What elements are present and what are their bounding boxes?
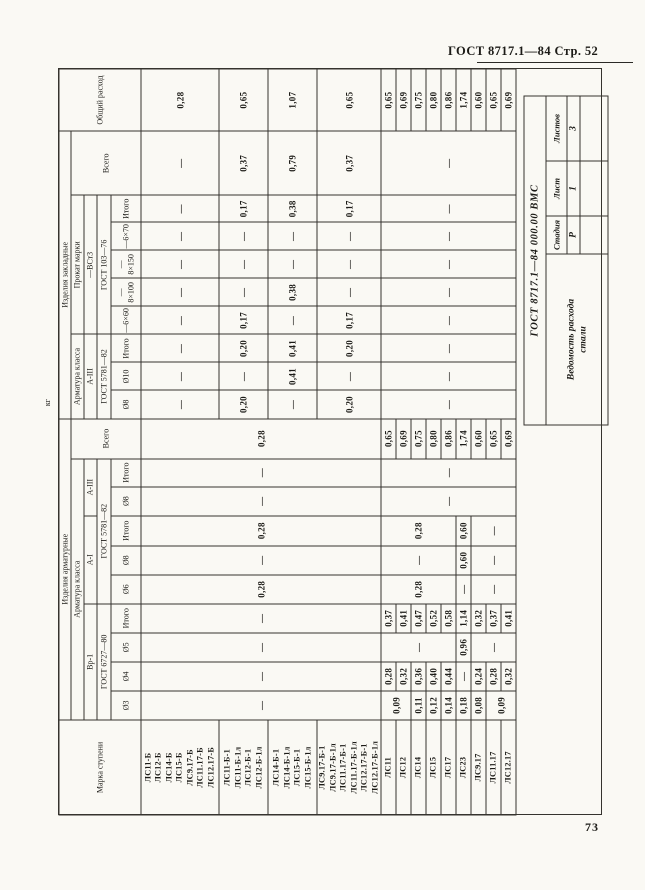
stamp-col-sheet: Лист 1	[546, 160, 607, 215]
header-cell: ГОСТ 5781—82	[97, 334, 111, 418]
data-cell: 0,60	[456, 515, 471, 545]
title-stamp: ГОСТ 8717.1—84 000.00 ВМС Ведомость расх…	[523, 95, 608, 425]
data-cell: 0,65	[486, 418, 501, 458]
data-cell: —	[141, 603, 381, 632]
header-cell: Ø10	[111, 362, 141, 390]
data-cell: 0,37	[381, 603, 396, 632]
data-cell: 0,28	[381, 515, 456, 545]
data-cell: —	[141, 545, 381, 574]
data-cell: 0,69	[396, 69, 411, 131]
main-table: Марка ступениИзделия арматурныеИзделия з…	[58, 68, 516, 815]
header-cell: Арматура класса	[71, 458, 84, 719]
data-cell: 0,17	[317, 306, 381, 334]
data-cell: 0,38	[268, 195, 317, 222]
stamp-document-title: Ведомость расхода стали	[546, 253, 607, 424]
mark-cell: ЛС9.17-Б-1 ЛС9.17-Б-1л ЛС11.17-Б-1 ЛС11.…	[317, 719, 381, 814]
data-cell: —	[141, 661, 381, 690]
data-cell: 0,38	[268, 278, 317, 306]
data-cell: 0,37	[219, 131, 268, 195]
data-cell: 0,69	[501, 69, 516, 131]
mark-cell: ЛС11-Б ЛС12-Б ЛС14-Б ЛС15-Б ЛС9.17-Б ЛС1…	[141, 719, 219, 814]
header-cell: ГОСТ 103—76	[97, 195, 111, 334]
data-cell: —	[141, 250, 219, 278]
data-cell: 0,09	[486, 690, 516, 719]
data-cell: —	[381, 195, 516, 222]
page-header: ГОСТ 8717.1—84 Стр. 52	[448, 44, 638, 59]
data-cell: —	[381, 486, 516, 515]
data-cell: —	[219, 362, 268, 390]
data-cell: —	[141, 334, 219, 362]
data-cell: 0,17	[219, 195, 268, 222]
data-cell: 0,32	[396, 661, 411, 690]
data-cell: 0,75	[411, 418, 426, 458]
stage-value: Р	[567, 216, 580, 253]
header-cell: Ø5	[111, 632, 141, 661]
data-cell: —	[141, 306, 219, 334]
stamp-col-sheets-total: Листов 3	[546, 96, 607, 160]
data-cell: —	[317, 250, 381, 278]
data-cell: —	[381, 334, 516, 362]
data-cell: 0,52	[426, 603, 441, 632]
data-cell: 0,58	[441, 603, 456, 632]
data-cell: —	[317, 278, 381, 306]
data-cell: 0,28	[381, 661, 396, 690]
data-cell: —	[317, 222, 381, 250]
data-cell: 0,28	[141, 418, 381, 458]
header-cell: Изделия арматурные	[59, 418, 71, 719]
data-cell: 0,65	[317, 69, 381, 131]
mark-cell: ЛС12	[396, 719, 411, 814]
header-cell: Итого	[111, 334, 141, 362]
sheets-total-label: Листов	[546, 96, 567, 160]
page-number: 73	[585, 820, 599, 835]
data-cell: —	[268, 250, 317, 278]
data-cell: 0,44	[441, 661, 456, 690]
sheets-total-value: 3	[567, 96, 580, 160]
data-cell: 0,18	[456, 690, 471, 719]
data-cell: —	[219, 250, 268, 278]
header-cell: Вр-1	[84, 603, 97, 719]
data-cell: 0,41	[268, 362, 317, 390]
data-cell: 0,20	[317, 334, 381, 362]
title-stamp-area: ГОСТ 8717.1—84 000.00 ВМС Ведомость расх…	[523, 95, 608, 425]
data-cell: 0,14	[441, 690, 456, 719]
header-cell: —8×150	[111, 250, 141, 278]
data-cell: —	[219, 278, 268, 306]
data-cell: —	[381, 545, 456, 574]
data-cell: —	[381, 131, 516, 195]
data-cell: 0,28	[486, 661, 501, 690]
data-cell: 0,60	[471, 69, 486, 131]
data-cell: 0,41	[268, 334, 317, 362]
data-cell: —	[381, 390, 516, 418]
data-cell: 0,36	[411, 661, 426, 690]
header-cell: Всего	[71, 418, 141, 458]
data-cell: —	[456, 661, 471, 690]
header-cell: Изделия закладные	[59, 131, 71, 418]
data-cell: —	[471, 632, 516, 661]
data-cell: 0,28	[141, 69, 219, 131]
data-cell: —	[381, 278, 516, 306]
mark-cell: ЛС14	[411, 719, 426, 814]
header-cell: ГОСТ 6727—80	[97, 603, 111, 719]
data-cell: —	[141, 278, 219, 306]
data-cell: —	[381, 306, 516, 334]
data-cell: 0,32	[501, 661, 516, 690]
sheet-label: Лист	[546, 161, 567, 215]
header-cell: —8×100	[111, 278, 141, 306]
data-cell: 0,75	[411, 69, 426, 131]
data-cell: —	[268, 222, 317, 250]
data-cell: 0,96	[456, 632, 471, 661]
data-cell: —	[141, 362, 219, 390]
data-cell: —	[381, 250, 516, 278]
data-cell: 1,74	[456, 418, 471, 458]
data-cell: —	[381, 222, 516, 250]
data-cell: 0,65	[381, 69, 396, 131]
data-cell: 0,60	[471, 418, 486, 458]
header-cell: Всего	[71, 131, 141, 195]
data-cell: —	[141, 632, 381, 661]
data-cell: 0,69	[396, 418, 411, 458]
data-cell: —	[141, 131, 219, 195]
data-cell: 0,47	[411, 603, 426, 632]
data-cell: 0,86	[441, 69, 456, 131]
data-cell: 0,86	[441, 418, 456, 458]
data-cell: 1,14	[456, 603, 471, 632]
header-cell: Ø8	[111, 486, 141, 515]
data-cell: 0,65	[486, 69, 501, 131]
data-cell: —	[141, 458, 381, 486]
data-cell: 0,28	[141, 574, 381, 603]
data-cell: 0,28	[381, 574, 456, 603]
data-cell: 0,20	[317, 390, 381, 418]
data-cell: 1,74	[456, 69, 471, 131]
header-cell: Ø8	[111, 545, 141, 574]
data-cell: —	[456, 574, 471, 603]
header-cell: Ø8	[111, 390, 141, 418]
stage-label: Стадия	[546, 216, 567, 253]
stamp-col-stage: Стадия Р	[546, 215, 607, 253]
stamp-title-line1: Ведомость расхода	[565, 254, 577, 424]
header-cell: Марка ступени	[59, 719, 141, 814]
header-cell: Итого	[111, 603, 141, 632]
mark-cell: ЛС17	[441, 719, 456, 814]
data-cell: —	[268, 306, 317, 334]
mark-cell: ЛС11	[381, 719, 396, 814]
mark-cell: ЛС11.17	[486, 719, 501, 814]
header-cell: Итого	[111, 515, 141, 545]
data-cell: 1,07	[268, 69, 317, 131]
header-cell: ГОСТ 5781—82	[97, 458, 111, 603]
header-cell: —ВСт3	[84, 195, 97, 334]
data-cell: —	[471, 545, 516, 574]
mark-cell: ЛС11-Б-1 ЛС11-Б-1л ЛС12-Б-1 ЛС12-Б-1л	[219, 719, 268, 814]
data-cell: —	[471, 574, 516, 603]
mark-cell: ЛС9.17	[471, 719, 486, 814]
data-cell: 0,17	[317, 195, 381, 222]
data-cell: 0,32	[471, 603, 486, 632]
data-cell: 0,69	[501, 418, 516, 458]
stamp-doc-number: ГОСТ 8717.1—84 000.00 ВМС	[524, 96, 546, 424]
data-cell: 0,28	[141, 515, 381, 545]
data-cell: 0,80	[426, 69, 441, 131]
data-cell: 0,37	[486, 603, 501, 632]
data-cell: 0,60	[456, 545, 471, 574]
mark-cell: ЛС15	[426, 719, 441, 814]
data-cell: 0,65	[219, 69, 268, 131]
data-cell: 0,79	[268, 131, 317, 195]
data-cell: 0,65	[381, 418, 396, 458]
data-cell: 0,17	[219, 306, 268, 334]
data-cell: —	[317, 362, 381, 390]
sheet-value: 1	[567, 161, 580, 215]
header-cell: Итого	[111, 195, 141, 222]
data-cell: —	[381, 458, 516, 486]
data-cell: 0,37	[317, 131, 381, 195]
data-cell: —	[219, 222, 268, 250]
data-cell: 0,40	[426, 661, 441, 690]
header-cell: —6×70	[111, 222, 141, 250]
stamp-title-line2: стали	[577, 254, 589, 424]
data-cell: —	[268, 390, 317, 418]
data-cell: 0,20	[219, 390, 268, 418]
data-cell: 0,12	[426, 690, 441, 719]
mark-cell: ЛС12.17	[501, 719, 516, 814]
data-cell: 0,41	[396, 603, 411, 632]
header-cell: Итого	[111, 458, 141, 486]
data-cell: —	[141, 195, 219, 222]
data-cell: —	[141, 690, 381, 719]
data-cell: 0,20	[219, 334, 268, 362]
data-cell: 0,41	[501, 603, 516, 632]
header-cell: А-I	[84, 515, 97, 603]
mark-cell: ЛС23	[456, 719, 471, 814]
data-cell: —	[381, 632, 456, 661]
header-cell: —6×60	[111, 306, 141, 334]
data-cell: 0,11	[411, 690, 426, 719]
header-cell: Ø6	[111, 574, 141, 603]
header-cell: Ø3	[111, 690, 141, 719]
header-cell: Арматура класса	[71, 334, 84, 418]
mark-cell: ЛС14-Б-1 ЛС14-Б-1л ЛС15-Б-1 ЛС15-Б-1л	[268, 719, 317, 814]
page-header-underline	[477, 62, 633, 63]
data-cell: —	[471, 515, 516, 545]
data-cell: 0,80	[426, 418, 441, 458]
data-cell: —	[141, 486, 381, 515]
header-cell: Ø4	[111, 661, 141, 690]
header-cell: А-III	[84, 334, 97, 418]
steel-consumption-table-area: Марка ступениИзделия арматурныеИзделия з…	[58, 68, 508, 815]
data-cell: —	[141, 390, 219, 418]
header-cell: Прокат марки	[71, 195, 84, 334]
scanned-document-page: ГОСТ 8717.1—84 Стр. 52 кг Марка ступениИ…	[0, 0, 645, 890]
data-cell: —	[141, 222, 219, 250]
data-cell: 0,09	[381, 690, 411, 719]
data-cell: —	[381, 362, 516, 390]
header-cell: Общий расход	[59, 69, 141, 131]
data-cell: 0,24	[471, 661, 486, 690]
unit-label: кг	[43, 399, 52, 406]
data-cell: 0,08	[471, 690, 486, 719]
header-cell: А-III	[84, 458, 97, 515]
